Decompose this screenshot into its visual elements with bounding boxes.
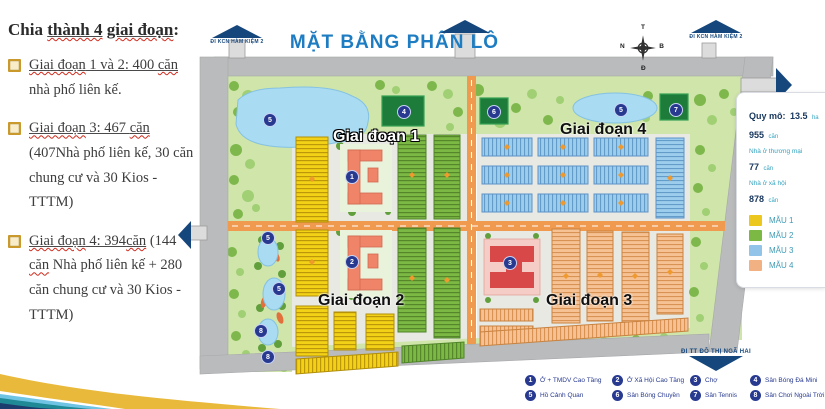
- up-arrow-icon: [440, 20, 490, 33]
- unit-type-3-label: MẪU 3: [769, 246, 793, 255]
- compass-east-label: Đ: [641, 65, 646, 72]
- social-housing-value: 878: [749, 194, 764, 204]
- unit-type-2-swatch: [749, 230, 762, 241]
- unit-type-1: MẪU 1: [749, 215, 821, 226]
- unit-type-3: MẪU 3: [749, 245, 821, 256]
- commercial-housing-line: 77 căn: [749, 157, 821, 175]
- compass-rose-icon: T N B Đ: [620, 24, 666, 72]
- scale-label: Quy mô:: [749, 111, 786, 121]
- legend-item-1: 1 Ở + TMDV Cao Tầng: [525, 375, 602, 386]
- phase-bullet-2-text: Giai đoạn 3: 467 căn (407Nhà phố liên kế…: [29, 116, 198, 215]
- exit-sign-top-mid: [435, 20, 495, 33]
- phase-bullet-2: Giai đoạn 3: 467 căn (407Nhà phố liên kế…: [8, 116, 198, 215]
- unit-type-legend: MẪU 1 MẪU 2 MẪU 3 MẪU 4: [749, 215, 821, 271]
- unit-type-2: MẪU 2: [749, 230, 821, 241]
- legend-num: 6: [612, 390, 623, 401]
- phase-bullet-3: Giai đoạn 4: 394căn (144 căn Nhà phố liê…: [8, 229, 198, 328]
- map-marker: 2: [345, 255, 359, 269]
- legend-num: 1: [525, 375, 536, 386]
- legend-label: Sân Bóng Đá Mini: [765, 377, 817, 384]
- legend-item-8: 8 Sân Chơi Ngoài Trời: [750, 390, 824, 401]
- unit-type-1-swatch: [749, 215, 762, 226]
- unit-type-4-label: MẪU 4: [769, 261, 793, 270]
- legend-label: Ở Xã Hội Cao Tầng: [627, 377, 684, 384]
- legend-num: 4: [750, 375, 761, 386]
- legend-label: Chợ: [705, 377, 718, 384]
- unit-type-4: MẪU 4: [749, 260, 821, 271]
- phase-bullet-3-text: Giai đoạn 4: 394căn (144 căn Nhà phố liê…: [29, 229, 198, 328]
- total-units-line: 955 căn: [749, 125, 821, 143]
- phase-bullet-1: Giai đoạn 1 và 2: 400 căn nhà phố liên k…: [8, 53, 198, 102]
- exit-label-bottom-right: ĐI TT ĐÔ THỊ NGÃ HAI: [681, 349, 751, 355]
- map-marker: 5: [261, 231, 275, 245]
- phases-text-panel: Chia thành 4 giai đoạn: Giai đoạn 1 và 2…: [8, 20, 198, 341]
- legend-label: Hồ Cảnh Quan: [540, 392, 583, 399]
- legend-label: Sân Tennis: [705, 392, 737, 399]
- total-units-unit: căn: [768, 134, 778, 140]
- down-arrow-icon: [689, 356, 743, 371]
- exit-sign-top-right: ĐI KCN HÀM KIỆM 2: [686, 20, 746, 40]
- map-marker: 5: [272, 282, 286, 296]
- compass-north-label: B: [659, 43, 664, 50]
- project-info-panel: Quy mô: 13.5 ha 955 căn Nhà ở thương mại…: [736, 92, 825, 288]
- unit-type-3-swatch: [749, 245, 762, 256]
- legend-label: Sân Bóng Chuyền: [627, 392, 680, 399]
- legend-num: 3: [690, 375, 701, 386]
- legend-num: 8: [750, 390, 761, 401]
- social-housing-label: Nhà ở xã hội: [749, 180, 821, 188]
- scale-line: Quy mô: 13.5 ha: [749, 106, 821, 124]
- map-marker: 4: [397, 105, 411, 119]
- legend-item-2: 2 Ở Xã Hội Cao Tầng: [612, 375, 684, 386]
- map-marker: 8: [254, 324, 268, 338]
- map-marker: 1: [345, 170, 359, 184]
- phase-label-4: Giai đoạn 4: [560, 121, 646, 139]
- scale-unit: ha: [812, 115, 819, 121]
- up-arrow-icon: [691, 20, 741, 33]
- legend-item-5: 5 Hồ Cảnh Quan: [525, 390, 583, 401]
- slide: Chia thành 4 giai đoạn: Giai đoạn 1 và 2…: [0, 0, 825, 409]
- left-arrow-icon: [178, 221, 191, 249]
- phase-label-3: Giai đoạn 3: [546, 292, 632, 310]
- compass-west-label: T: [641, 24, 645, 31]
- legend-num: 7: [690, 390, 701, 401]
- exit-label-top-right: ĐI KCN HÀM KIỆM 2: [689, 34, 742, 40]
- legend-item-3: 3 Chợ: [690, 375, 718, 386]
- unit-type-2-label: MẪU 2: [769, 231, 793, 240]
- map-marker: 8: [261, 350, 275, 364]
- bullet-checkbox-icon: [8, 122, 21, 135]
- compass-south-label: N: [620, 43, 625, 50]
- legend-label: Sân Chơi Ngoài Trời: [765, 392, 824, 399]
- legend-item-6: 6 Sân Bóng Chuyền: [612, 390, 680, 401]
- scale-value: 13.5: [790, 111, 808, 121]
- phase-label-2: Giai đoạn 2: [318, 292, 404, 310]
- exit-sign-top-left: ĐI KCN HÀM KIỆM 2: [207, 25, 267, 45]
- phases-title: Chia thành 4 giai đoạn:: [8, 20, 198, 40]
- commercial-housing-unit: căn: [763, 166, 773, 172]
- legend-num: 5: [525, 390, 536, 401]
- map-marker: 5: [614, 103, 628, 117]
- social-housing-line: 878 căn: [749, 189, 821, 207]
- unit-type-4-swatch: [749, 260, 762, 271]
- legend-item-4: 4 Sân Bóng Đá Mini: [750, 375, 817, 386]
- bullet-checkbox-icon: [8, 235, 21, 248]
- compass-star-icon: [627, 32, 659, 64]
- bullet-checkbox-icon: [8, 59, 21, 72]
- phase-label-1: Giai đoạn 1: [333, 128, 419, 146]
- exit-sign-bottom-right: ĐI TT ĐÔ THỊ NGÃ HAI: [684, 349, 748, 371]
- map-title: MẶT BẰNG PHÂN LÔ: [282, 32, 507, 54]
- unit-type-1-label: MẪU 1: [769, 216, 793, 225]
- legend-item-7: 7 Sân Tennis: [690, 390, 737, 401]
- legend-num: 2: [612, 375, 623, 386]
- commercial-housing-value: 77: [749, 162, 759, 172]
- map-marker: 7: [669, 103, 683, 117]
- map-marker: 3: [503, 256, 517, 270]
- legend-label: Ở + TMDV Cao Tầng: [540, 377, 602, 384]
- phase-bullet-1-text: Giai đoạn 1 và 2: 400 căn nhà phố liên k…: [29, 53, 198, 102]
- up-arrow-icon: [212, 25, 262, 38]
- total-units-value: 955: [749, 130, 764, 140]
- social-housing-unit: căn: [768, 198, 778, 204]
- commercial-housing-label: Nhà ở thương mại: [749, 148, 821, 156]
- exit-label-top-left: ĐI KCN HÀM KIỆM 2: [210, 39, 263, 45]
- map-marker: 6: [487, 105, 501, 119]
- map-marker: 5: [263, 113, 277, 127]
